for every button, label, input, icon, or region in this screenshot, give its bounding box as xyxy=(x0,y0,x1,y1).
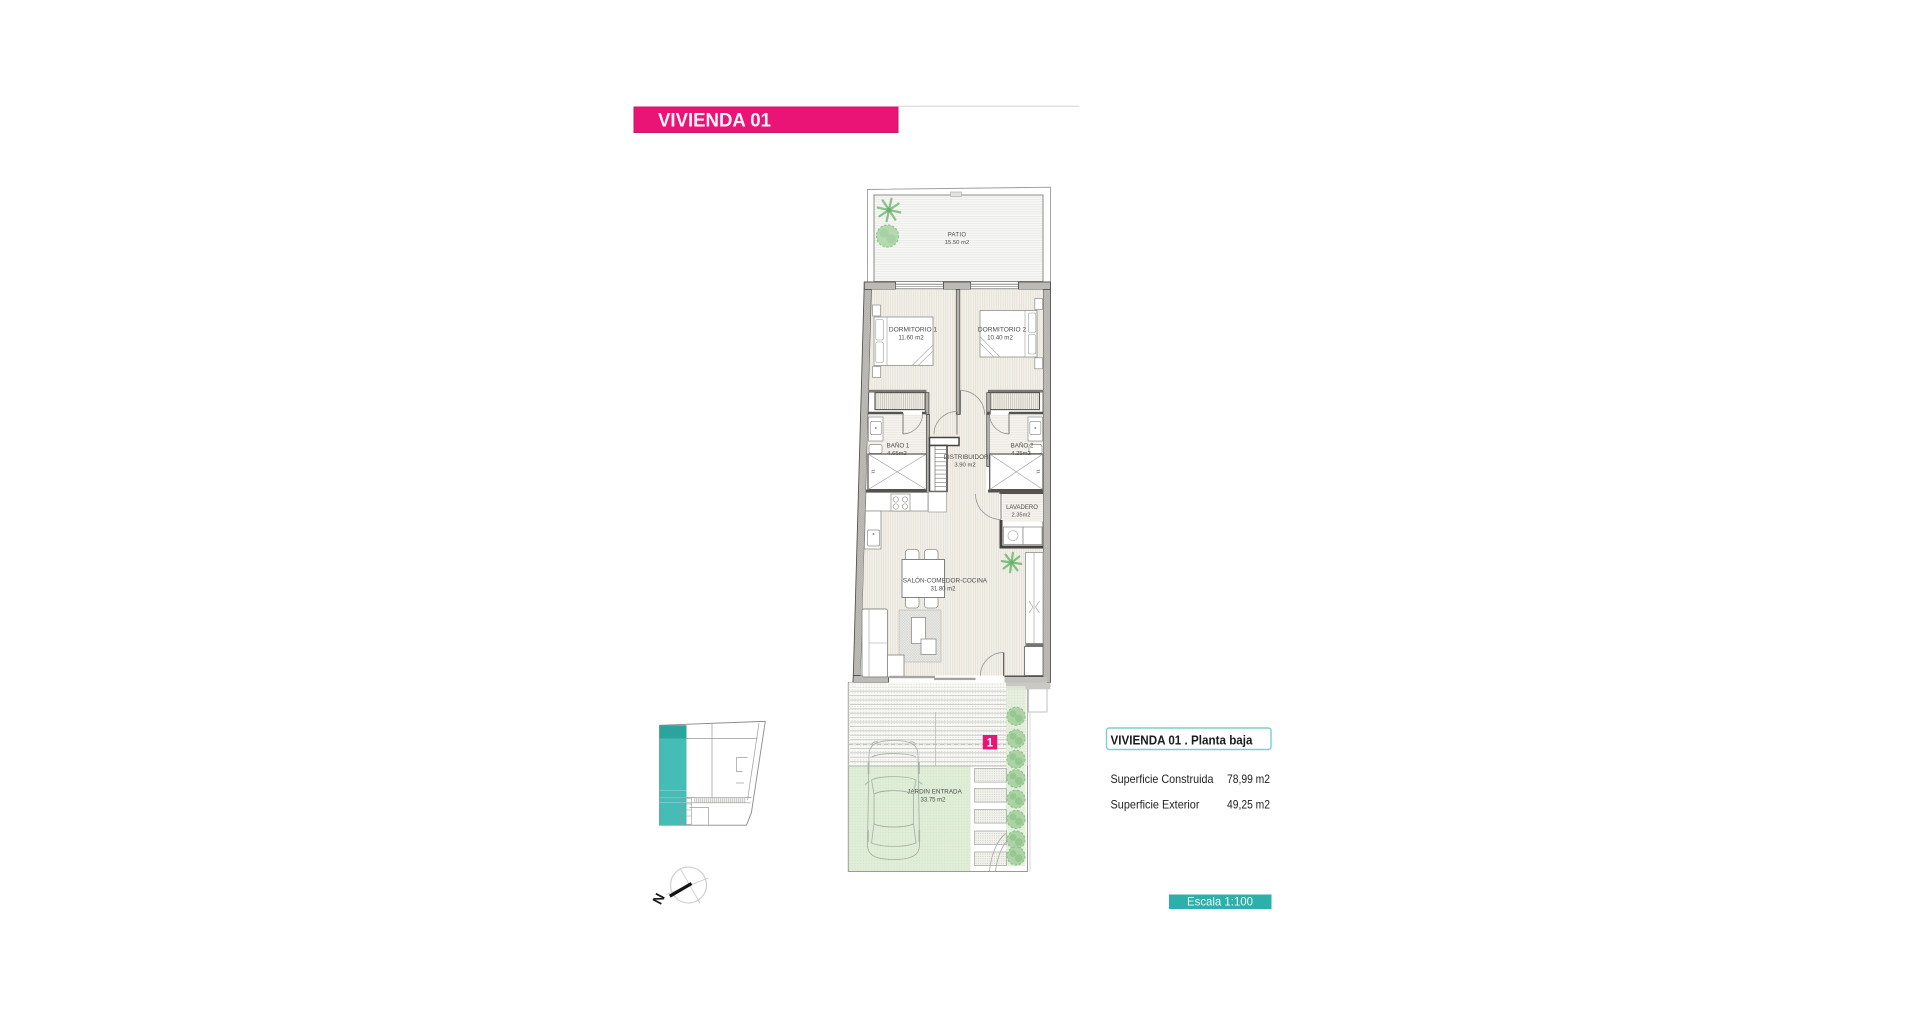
svg-text:Superficie Exterior: Superficie Exterior xyxy=(1111,799,1200,812)
svg-text:DORMITORIO 1: DORMITORIO 1 xyxy=(889,327,938,334)
svg-text:2.35m2: 2.35m2 xyxy=(1012,513,1031,519)
svg-text:78,99 m2: 78,99 m2 xyxy=(1227,773,1270,786)
svg-text:VIVIENDA 01 . Planta baja: VIVIENDA 01 . Planta baja xyxy=(1111,733,1254,748)
svg-text:49,25 m2: 49,25 m2 xyxy=(1227,799,1270,812)
svg-text:BAÑO 2: BAÑO 2 xyxy=(1011,443,1034,450)
svg-text:11.60 m2: 11.60 m2 xyxy=(898,335,924,342)
svg-text:Escala 1:100: Escala 1:100 xyxy=(1187,895,1253,909)
svg-text:PATIO: PATIO xyxy=(948,233,967,239)
svg-text:4.25m2: 4.25m2 xyxy=(1011,451,1031,457)
svg-text:33.75 m2: 33.75 m2 xyxy=(920,798,946,804)
svg-text:N: N xyxy=(649,890,668,906)
svg-text:LAVADERO: LAVADERO xyxy=(1006,505,1038,511)
svg-text:Superficie Construida: Superficie Construida xyxy=(1111,773,1215,786)
svg-text:1: 1 xyxy=(987,737,994,749)
svg-text:DORMITORIO 2: DORMITORIO 2 xyxy=(978,327,1027,334)
svg-text:31.80 m2: 31.80 m2 xyxy=(930,587,956,593)
svg-text:3.90 m2: 3.90 m2 xyxy=(954,463,975,469)
svg-text:4.65m2: 4.65m2 xyxy=(887,451,907,457)
svg-text:BAÑO 1: BAÑO 1 xyxy=(887,443,910,450)
svg-text:DISTRIBUIDOR: DISTRIBUIDOR xyxy=(944,454,990,461)
svg-text:VIVIENDA 01: VIVIENDA 01 xyxy=(658,110,771,132)
svg-text:JARDIN ENTRADA: JARDIN ENTRADA xyxy=(907,789,962,796)
svg-text:15.50 m2: 15.50 m2 xyxy=(945,240,970,246)
svg-text:SALÓN-COMEDOR-COCINA: SALÓN-COMEDOR-COCINA xyxy=(903,576,988,585)
svg-text:10.40 m2: 10.40 m2 xyxy=(987,335,1013,342)
